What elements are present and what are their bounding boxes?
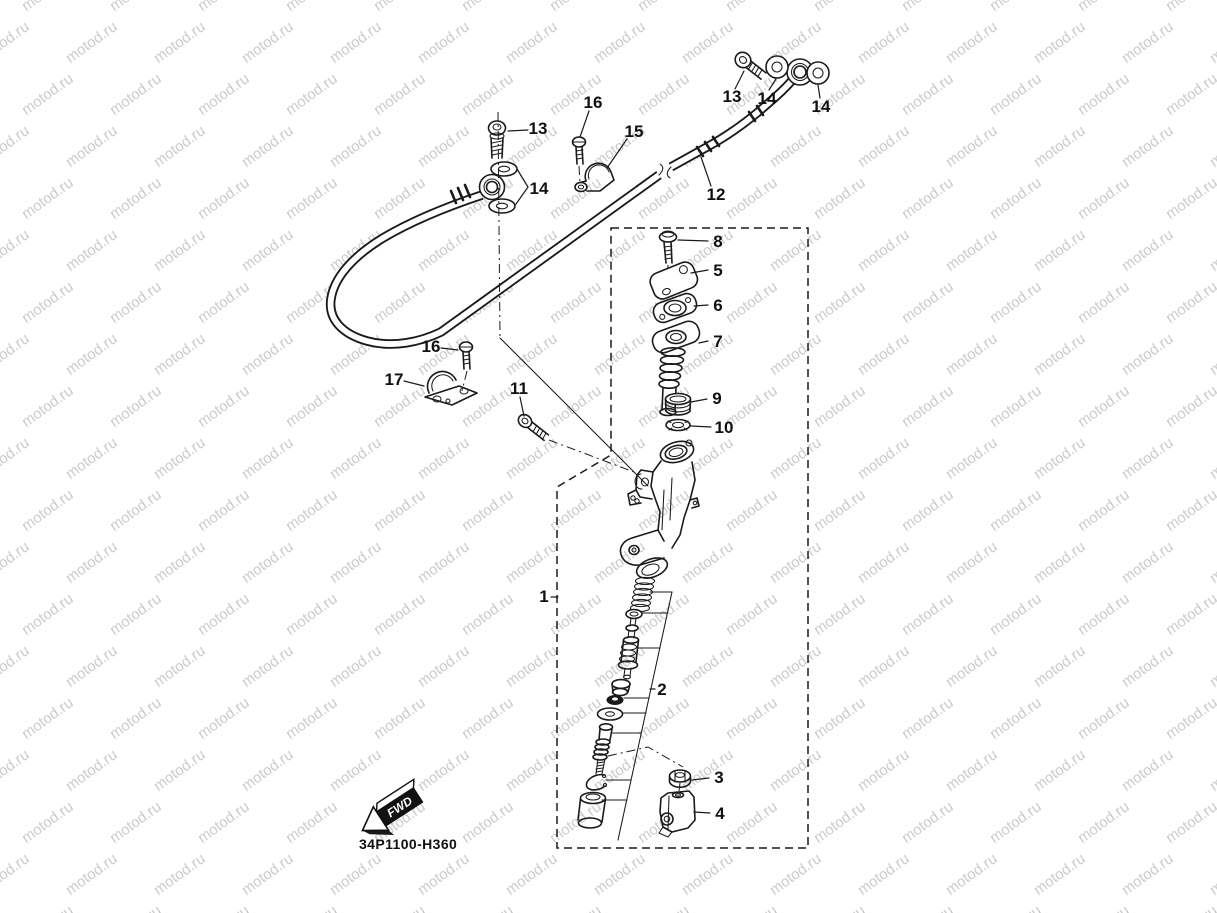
- clamp-screw-mid: [460, 342, 473, 391]
- washer-top-right: [807, 62, 829, 84]
- washer-left-upper: [491, 162, 517, 176]
- callout-16-top: 16: [584, 93, 603, 112]
- callout-9: 9: [712, 389, 721, 408]
- mount-bolt: [516, 412, 550, 442]
- exploded-diagram: 1 2 3 4 5 6 7 8 9 10 11 12 13 13 14 14 1…: [0, 0, 1217, 913]
- lock-washer: [666, 420, 690, 431]
- callout-3: 3: [714, 768, 723, 787]
- callout-14-top-b: 14: [812, 97, 831, 116]
- callout-1: 1: [539, 587, 548, 606]
- reservoir-cup: [666, 394, 691, 415]
- banjo-bolt-left: [489, 121, 506, 158]
- callout-17: 17: [385, 370, 404, 389]
- diagram-code: 34P1100-H360: [359, 836, 457, 852]
- callout-7: 7: [713, 332, 722, 351]
- hose-clamp-mid: [425, 372, 477, 405]
- callout-15: 15: [625, 122, 644, 141]
- clamp-screw-top: [573, 137, 586, 183]
- mount-bolt-axis: [549, 440, 634, 472]
- callout-12: 12: [707, 185, 726, 204]
- callout-14-left: 14: [530, 179, 549, 198]
- callout-11: 11: [510, 379, 528, 398]
- callout-6: 6: [713, 296, 722, 315]
- callout-5: 5: [713, 261, 722, 280]
- washer-left-lower: [489, 199, 515, 213]
- callout-4: 4: [715, 804, 725, 823]
- piston-kit: [578, 610, 642, 829]
- hose-clamp-top: [575, 163, 614, 191]
- callout-10: 10: [715, 418, 734, 437]
- parts-diagram-page: motod.rumotod.rumotod.rumotod.rumotod.ru…: [0, 0, 1217, 913]
- callout-16-mid: 16: [422, 337, 441, 356]
- callout-14-top-a: 14: [758, 89, 777, 108]
- hose-eyelet-left: [480, 175, 505, 200]
- clevis-joint: [659, 791, 695, 837]
- banjo-bolt-top: [732, 49, 768, 82]
- banjo-to-inlet-line: [500, 338, 648, 486]
- callout-13-left: 13: [529, 119, 548, 138]
- callout-8: 8: [713, 232, 722, 251]
- callout-13-top: 13: [723, 87, 742, 106]
- master-cylinder-body: [620, 438, 699, 582]
- washer-top-left: [766, 56, 788, 78]
- pushrod-axis: [608, 747, 683, 767]
- return-spring: [631, 577, 655, 611]
- nut-clevis-axis: [679, 783, 680, 791]
- callout-2: 2: [657, 680, 666, 699]
